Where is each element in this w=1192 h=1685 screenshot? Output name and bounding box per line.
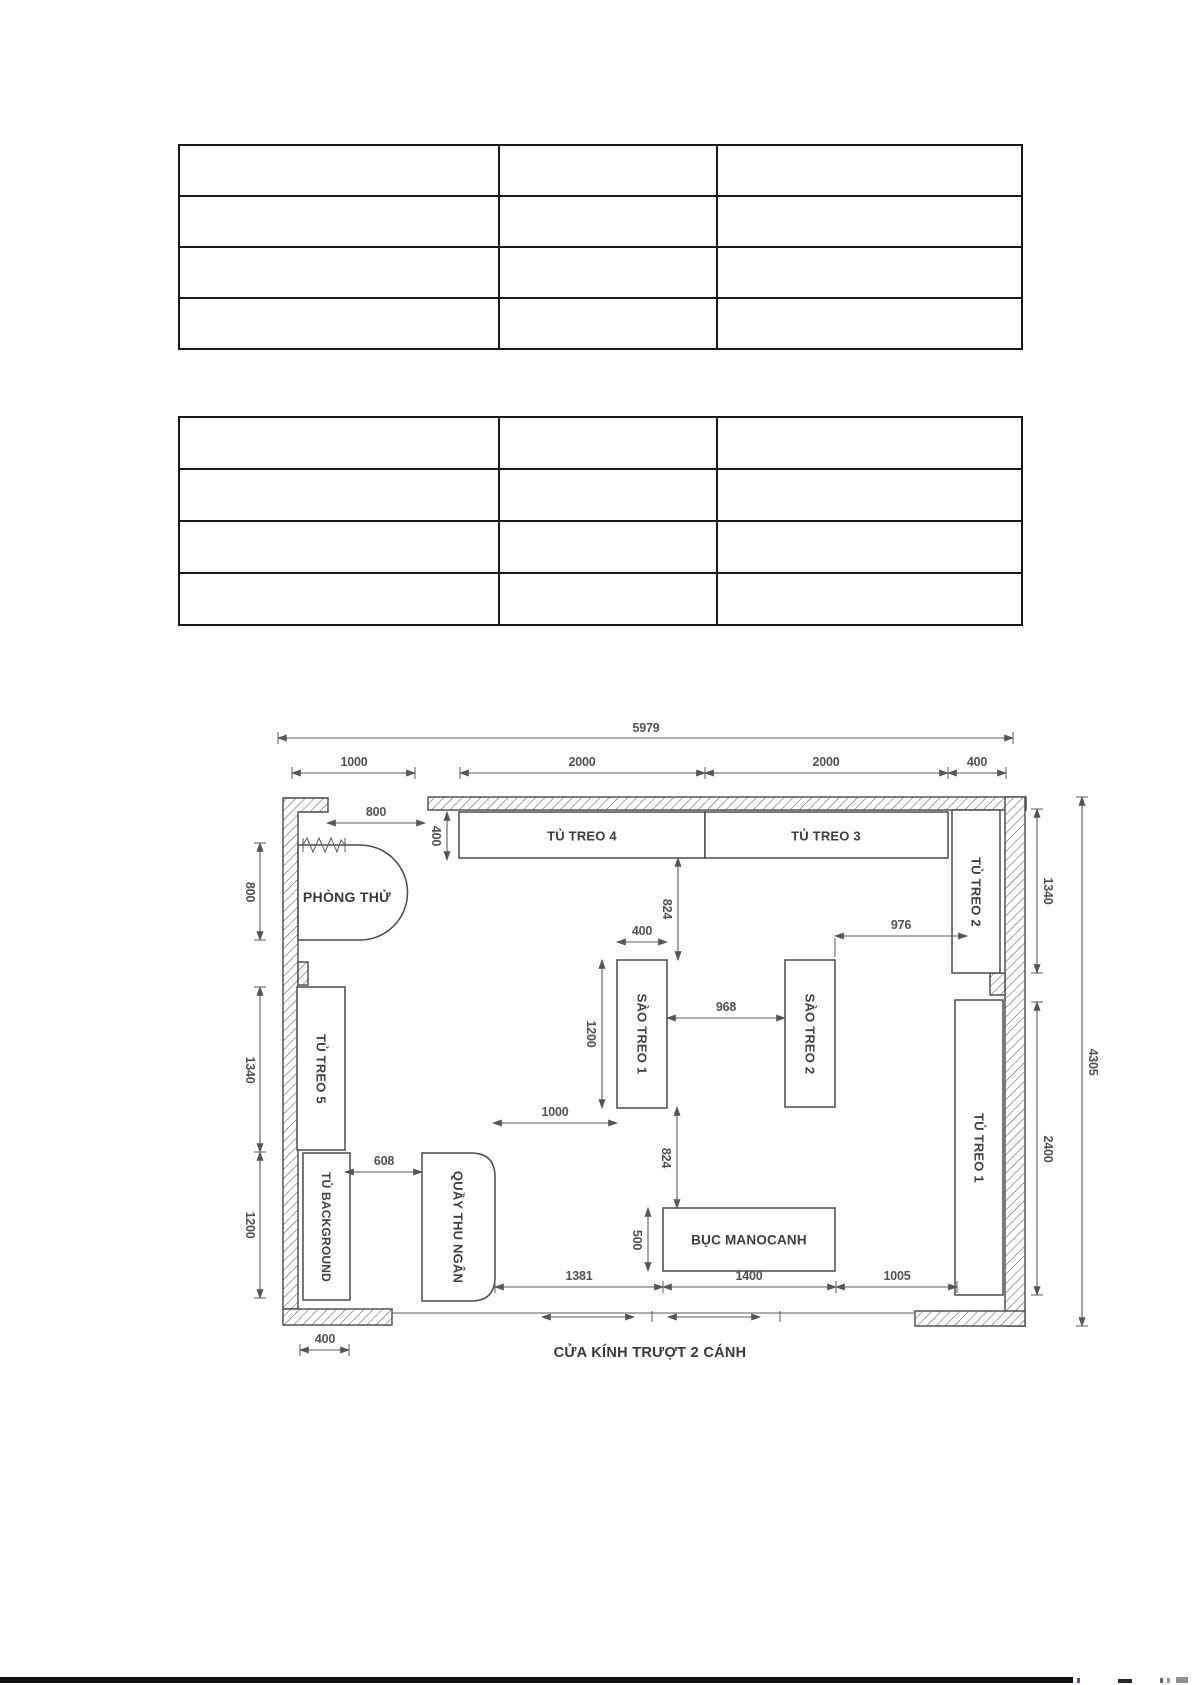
dim-label-800-fit: 800 (366, 805, 387, 819)
empty-table-2 (178, 416, 1023, 626)
dim-label-400-cab: 400 (429, 826, 443, 847)
label-tu-treo-1: TỦ TREO 1 (972, 1113, 987, 1183)
label-phong-thu: PHÒNG THỬ (303, 888, 391, 905)
bottom-bar-mark (1077, 1678, 1080, 1683)
label-sao-treo-2: SÀO TREO 2 (803, 994, 818, 1075)
dim-label-500: 500 (630, 1230, 644, 1251)
table-row (179, 469, 1022, 521)
left-wall-notch (298, 962, 308, 985)
dim-label-2400-right: 2400 (1041, 1135, 1055, 1162)
dim-label-400-top: 400 (967, 755, 988, 769)
empty-cell (717, 196, 1022, 247)
dim-label-1200-left: 1200 (243, 1211, 257, 1238)
dim-label-824-lower: 824 (659, 1148, 673, 1169)
document-page: 5979 1000 2000 2000 400 800 1340 1200 40… (0, 0, 1192, 1685)
dim-label-1381: 1381 (565, 1269, 592, 1283)
top-wall (428, 797, 1026, 810)
empty-cell (179, 298, 499, 349)
dim-label-400-rail: 400 (632, 924, 653, 938)
empty-cell (179, 573, 499, 625)
dim-label-824-upper: 824 (660, 899, 674, 920)
table-row (179, 298, 1022, 349)
bottom-bar-mark (1160, 1678, 1163, 1683)
empty-cell (499, 145, 717, 196)
table-row (179, 573, 1022, 625)
empty-cell (179, 247, 499, 298)
empty-cell (499, 196, 717, 247)
empty-cell (499, 298, 717, 349)
label-sliding-door: CỬA KÍNH TRƯỢT 2 CÁNH (554, 1343, 747, 1361)
empty-cell (179, 417, 499, 469)
floor-plan: 5979 1000 2000 2000 400 800 1340 1200 40… (240, 655, 1120, 1370)
dim-label-1340-left: 1340 (243, 1056, 257, 1083)
empty-cell (179, 469, 499, 521)
dim-label-1200-rail: 1200 (584, 1020, 598, 1047)
dim-label-5979: 5979 (632, 721, 659, 735)
bottom-bar-mark (1167, 1678, 1170, 1683)
empty-cell (717, 145, 1022, 196)
empty-cell (717, 573, 1022, 625)
label-tu-treo-4: TỦ TREO 4 (547, 829, 617, 844)
dim-label-1005: 1005 (883, 1269, 910, 1283)
empty-cell (717, 247, 1022, 298)
bottom-scan-bar (0, 1677, 1073, 1683)
label-tu-treo-5: TỦ TREO 5 (314, 1034, 329, 1104)
dim-label-2000a: 2000 (568, 755, 595, 769)
bottom-bar-mark (1176, 1677, 1188, 1683)
dim-label-1000-aisle: 1000 (541, 1105, 568, 1119)
bottom-bar-mark (1118, 1679, 1132, 1683)
dim-label-976: 976 (891, 918, 912, 932)
dim-label-2000b: 2000 (812, 755, 839, 769)
label-tu-treo-2: TỦ TREO 2 (969, 857, 984, 927)
table-row (179, 196, 1022, 247)
table-row (179, 145, 1022, 196)
label-quay-thu-ngan: QUẦY THU NGÂN (451, 1171, 466, 1283)
label-buc-manocanh: BỤC MANOCANH (691, 1233, 807, 1248)
label-tu-background: TỦ BACKGROUND (319, 1172, 334, 1282)
empty-cell (717, 469, 1022, 521)
dim-label-400-bottom: 400 (315, 1332, 336, 1346)
empty-cell (717, 298, 1022, 349)
dim-label-1000-top: 1000 (340, 755, 367, 769)
empty-cell (499, 573, 717, 625)
bottom-right-wall (915, 1311, 1025, 1326)
table-row (179, 417, 1022, 469)
label-tu-treo-3: TỦ TREO 3 (791, 829, 861, 844)
dim-label-800-left: 800 (243, 882, 257, 903)
dim-label-1400: 1400 (735, 1269, 762, 1283)
dim-label-608: 608 (374, 1154, 395, 1168)
right-wall-notch (990, 973, 1005, 995)
empty-cell (717, 521, 1022, 573)
empty-cell (499, 417, 717, 469)
empty-cell (717, 417, 1022, 469)
empty-cell (179, 521, 499, 573)
right-wall (1005, 797, 1025, 1326)
empty-cell (499, 247, 717, 298)
empty-cell (179, 145, 499, 196)
dim-label-968: 968 (716, 1000, 737, 1014)
bottom-left-wall (283, 1309, 392, 1325)
empty-cell (179, 196, 499, 247)
empty-cell (499, 469, 717, 521)
dim-label-4305-right: 4305 (1086, 1048, 1100, 1075)
table-row (179, 521, 1022, 573)
table-row (179, 247, 1022, 298)
label-sao-treo-1: SÀO TREO 1 (635, 994, 650, 1075)
dim-label-1340-right: 1340 (1041, 877, 1055, 904)
empty-cell (499, 521, 717, 573)
empty-table-1 (178, 144, 1023, 350)
